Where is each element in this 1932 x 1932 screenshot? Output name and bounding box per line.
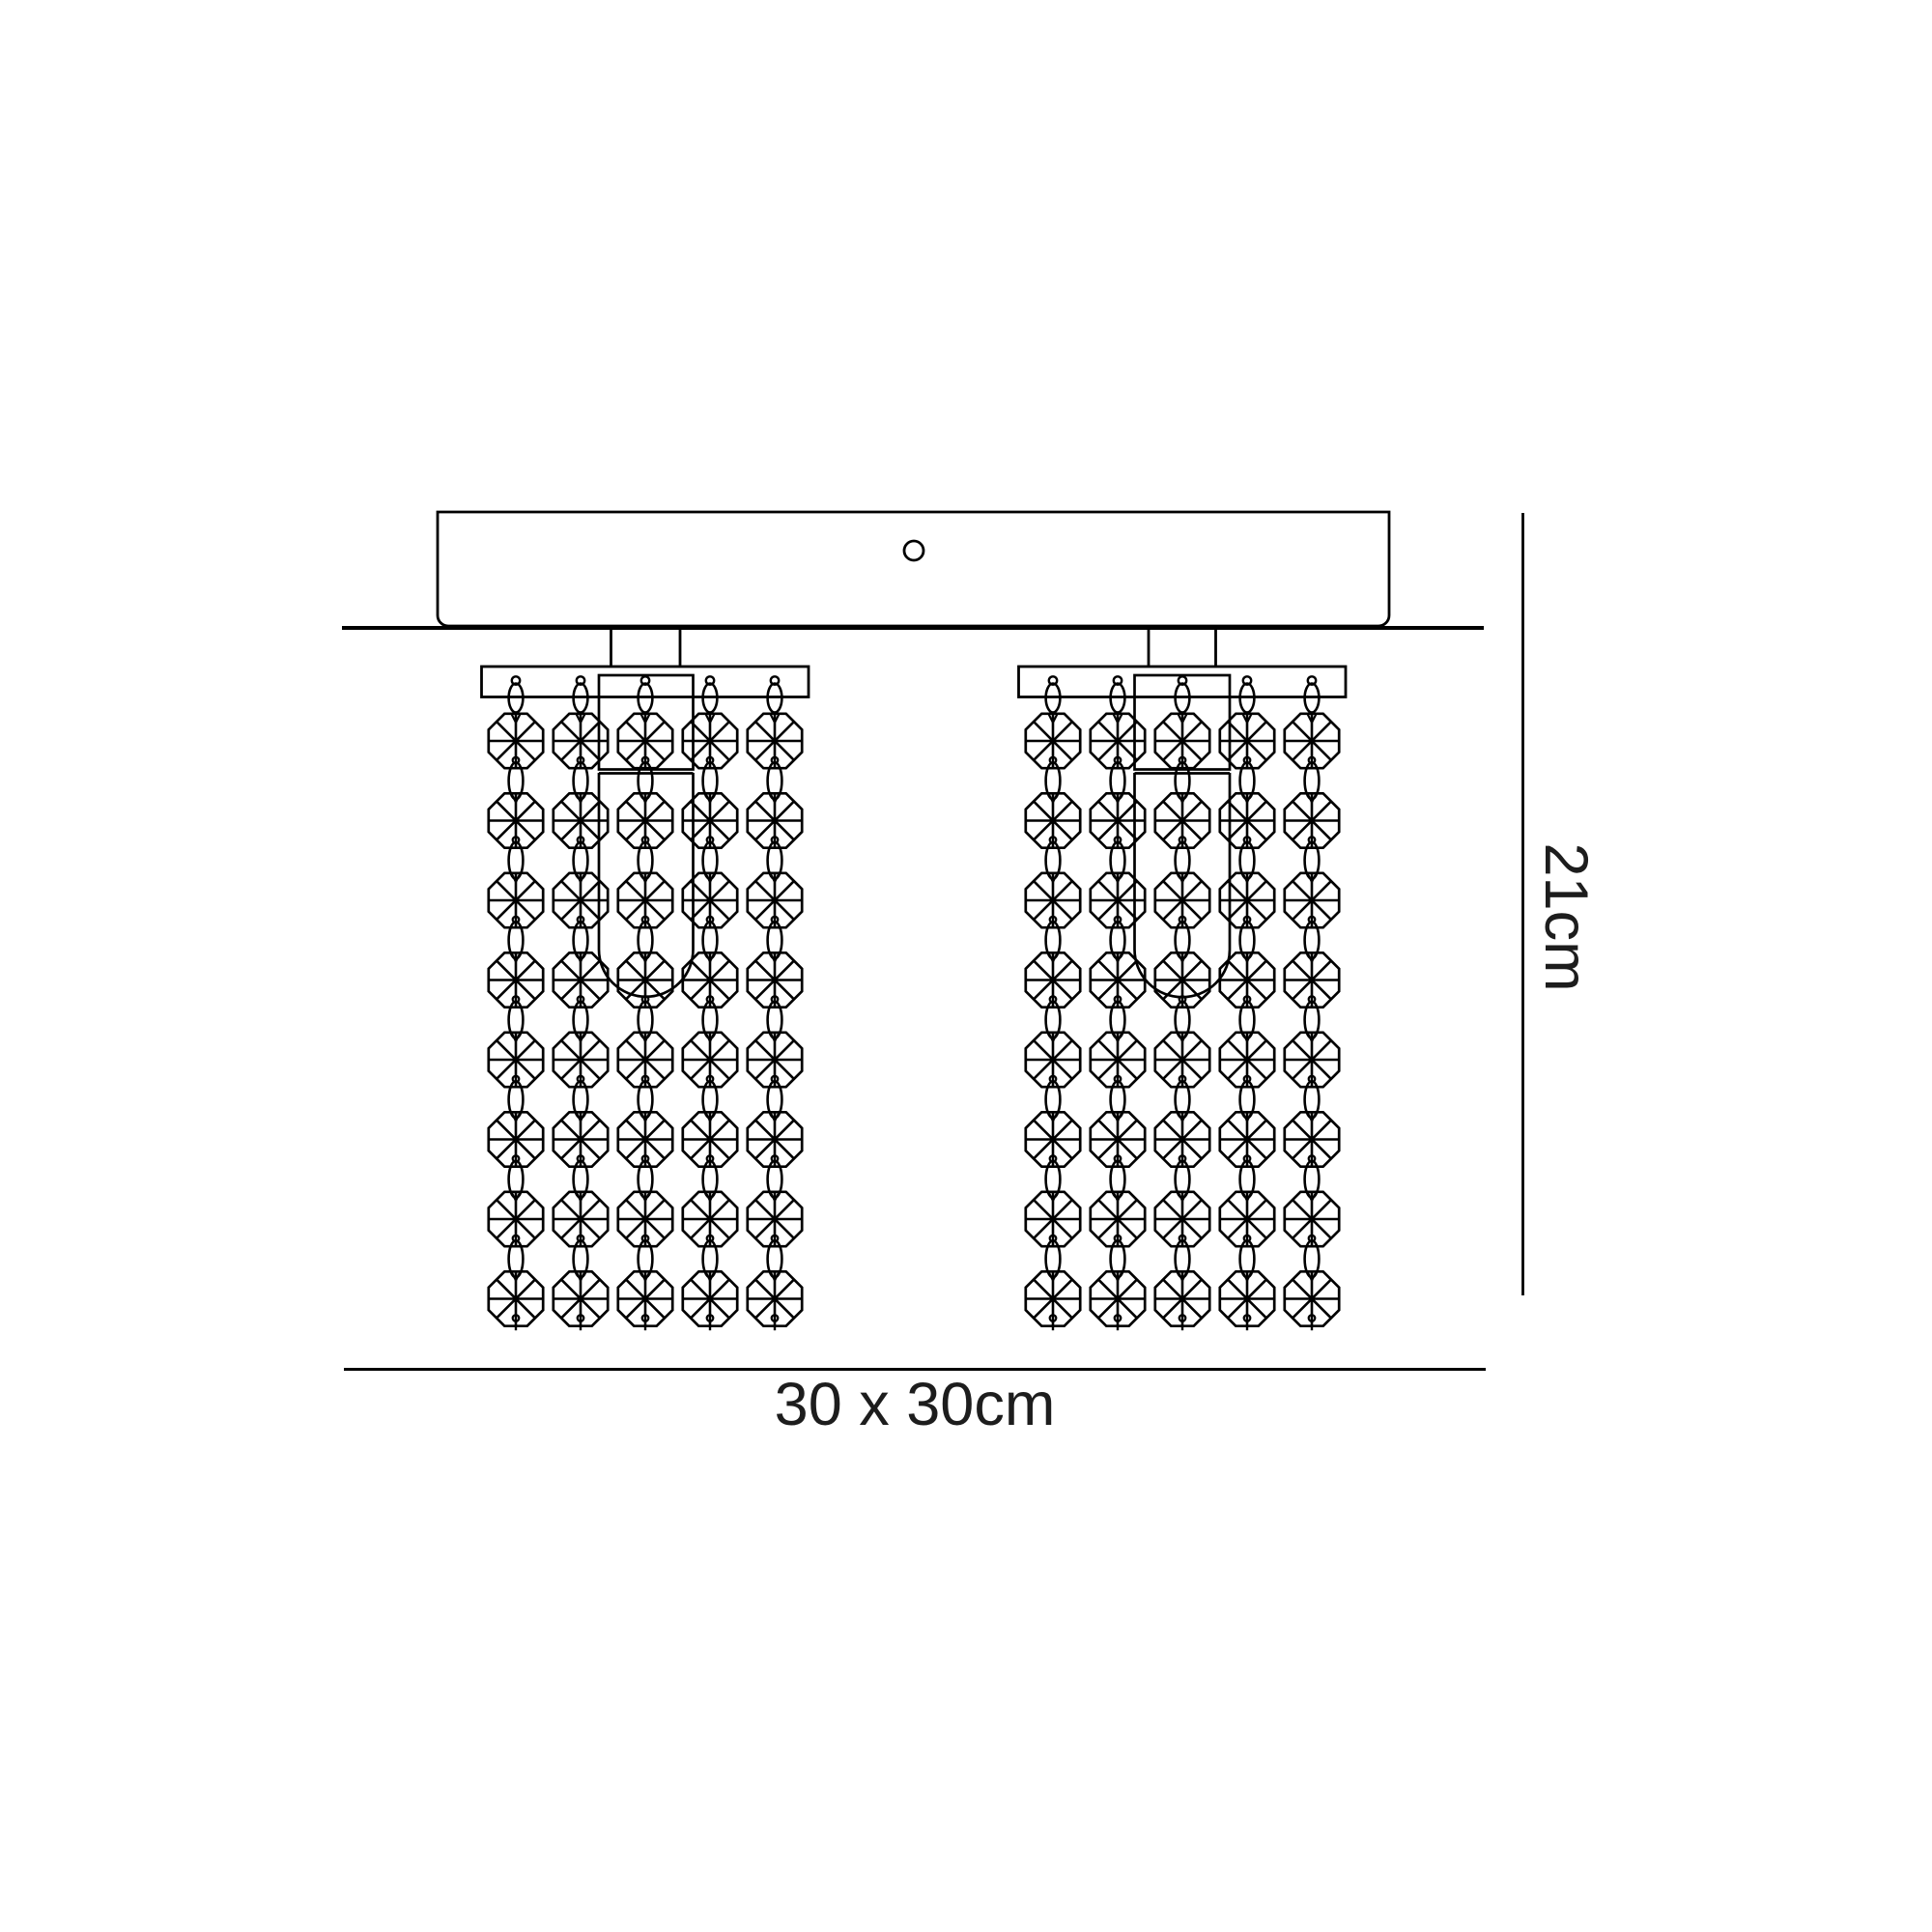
svg-text:30 x 30cm: 30 x 30cm	[775, 1371, 1056, 1438]
svg-text:21cm: 21cm	[1532, 843, 1600, 992]
